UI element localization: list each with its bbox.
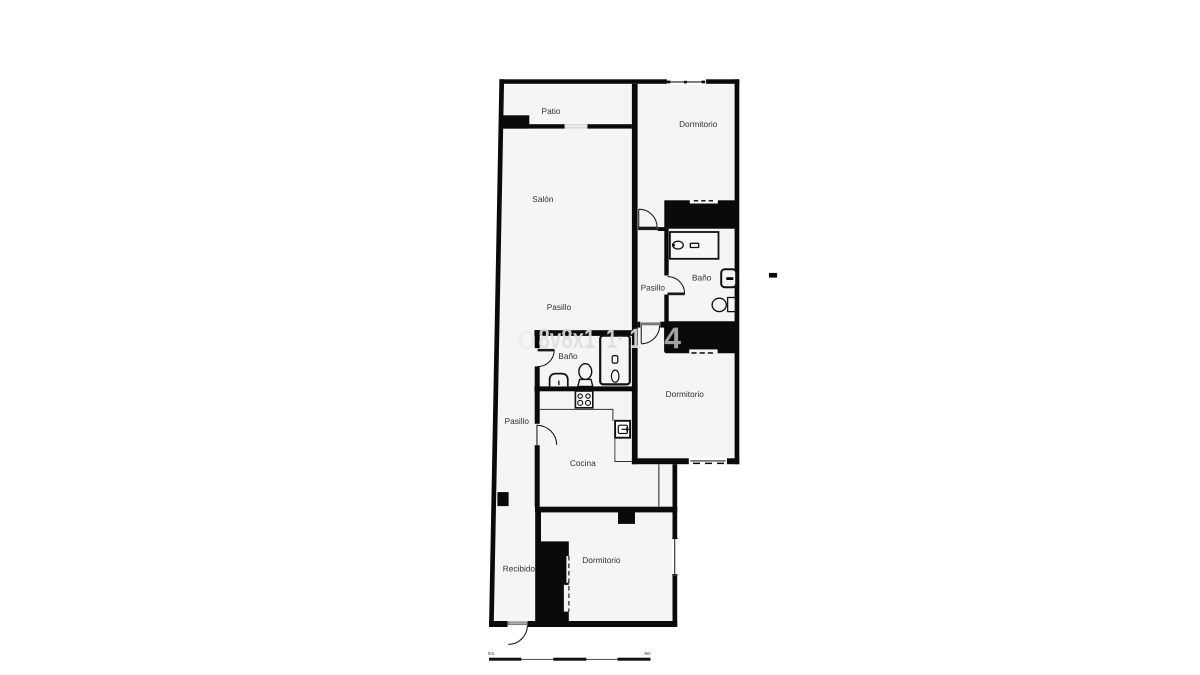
svg-text:Recibido: Recibido bbox=[503, 564, 536, 574]
svg-text:Salón: Salón bbox=[532, 194, 554, 204]
svg-text:0m: 0m bbox=[488, 651, 495, 656]
svg-text:Dormitorio: Dormitorio bbox=[679, 119, 718, 129]
svg-text:Dormitorio: Dormitorio bbox=[666, 389, 705, 399]
svg-text:Cocina: Cocina bbox=[570, 458, 596, 468]
svg-text:Pasillo: Pasillo bbox=[641, 282, 666, 292]
svg-text:Baño: Baño bbox=[692, 272, 712, 282]
svg-text:Dormitorio: Dormitorio bbox=[582, 555, 621, 565]
svg-text:Pasillo: Pasillo bbox=[547, 302, 572, 312]
svg-text:Pasillo: Pasillo bbox=[505, 416, 530, 426]
svg-text:Patio: Patio bbox=[542, 106, 561, 116]
svg-text:Baño: Baño bbox=[558, 351, 578, 361]
svg-text:9m: 9m bbox=[644, 651, 651, 656]
